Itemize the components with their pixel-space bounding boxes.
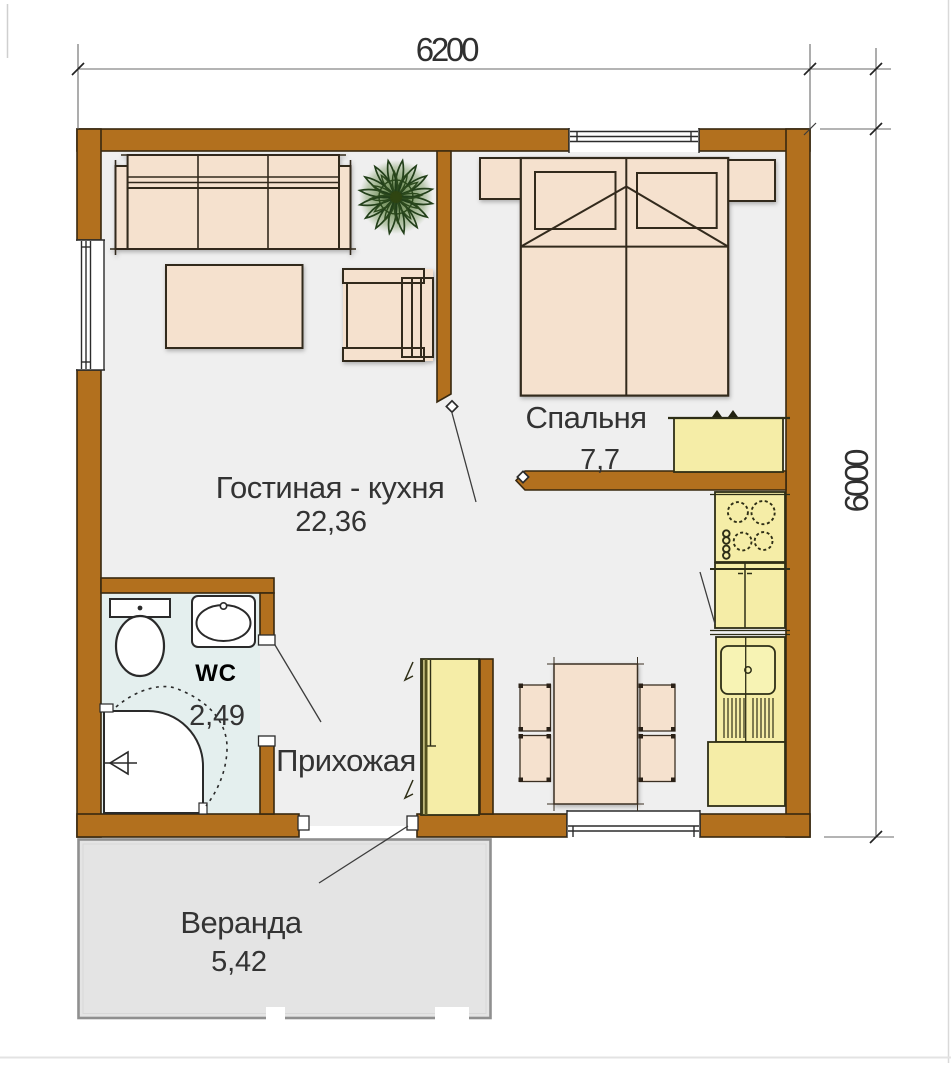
svg-text:Гостиная - кухня: Гостиная - кухня <box>216 470 444 505</box>
svg-text:6200: 6200 <box>416 31 479 68</box>
svg-text:5,42: 5,42 <box>211 946 267 978</box>
svg-text:7,7: 7,7 <box>580 444 620 476</box>
svg-text:2,49: 2,49 <box>189 700 245 732</box>
svg-text:6000: 6000 <box>838 449 875 512</box>
svg-text:WC: WC <box>195 660 237 687</box>
svg-text:Прихожая: Прихожая <box>276 743 416 778</box>
svg-text:22,36: 22,36 <box>295 506 367 538</box>
svg-text:Спальня: Спальня <box>525 400 646 435</box>
svg-text:Веранда: Веранда <box>180 905 303 940</box>
